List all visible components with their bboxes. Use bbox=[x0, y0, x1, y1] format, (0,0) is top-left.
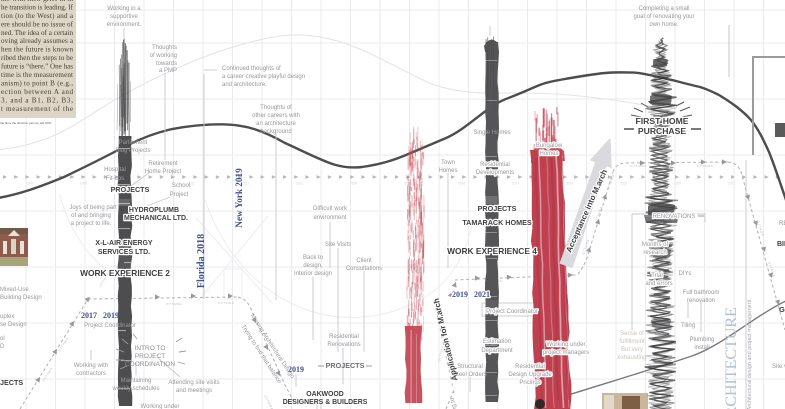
svg-text:project managers: project managers bbox=[543, 350, 589, 356]
svg-text:COORDINATION: COORDINATION bbox=[125, 361, 175, 368]
svg-text:Project Coordinator: Project Coordinator bbox=[84, 323, 136, 329]
svg-text:Site Visits: Site Visits bbox=[325, 242, 351, 248]
svg-text:Architectural design and proje: Architectural design and project managem… bbox=[747, 299, 753, 409]
svg-text:Working under: Working under bbox=[547, 342, 586, 348]
svg-text:OTTAWA: OTTAWA bbox=[166, 302, 183, 306]
svg-text:RE: RE bbox=[779, 221, 785, 227]
svg-text:environment.: environment. bbox=[107, 22, 142, 28]
svg-text:RENOVATIONS: RENOVATIONS bbox=[653, 214, 696, 220]
svg-text:PROJECTS: PROJECTS bbox=[478, 204, 517, 213]
svg-text:2021: 2021 bbox=[728, 182, 735, 186]
svg-text:and meetings: and meetings bbox=[176, 388, 212, 394]
svg-text:Renovations: Renovations bbox=[327, 342, 360, 348]
svg-text:Interior design: Interior design bbox=[294, 271, 332, 277]
svg-text:Thoughts of: Thoughts of bbox=[260, 105, 292, 111]
svg-text:own home.: own home. bbox=[649, 22, 679, 28]
svg-text:Maintaining: Maintaining bbox=[121, 378, 152, 384]
svg-text:Developments: Developments bbox=[476, 170, 514, 176]
svg-text:Continued thoughts of: Continued thoughts of bbox=[222, 66, 281, 72]
svg-text:ARCHITECTURE: ARCHITECTURE bbox=[723, 307, 740, 409]
svg-text:a career creative playful desi: a career creative playful design bbox=[222, 74, 305, 80]
svg-text:Single Homes: Single Homes bbox=[473, 130, 510, 136]
svg-text:an architecture: an architecture bbox=[256, 121, 296, 127]
svg-text:Mixed-Use: Mixed-Use bbox=[0, 287, 29, 293]
svg-text:3, and a B1, B2, B3,: 3, and a B1, B2, B3, bbox=[1, 96, 73, 104]
svg-text:SERVICES LTD.: SERVICES LTD. bbox=[98, 249, 150, 256]
svg-text:HYDROPLUMB: HYDROPLUMB bbox=[129, 207, 179, 214]
svg-text:Working in a: Working in a bbox=[107, 6, 141, 12]
svg-text:and architecture.: and architecture. bbox=[222, 82, 267, 88]
svg-text:FIRST HOME: FIRST HOME bbox=[636, 116, 689, 126]
svg-text:D: D bbox=[0, 344, 5, 350]
svg-text:t measurement of the: t measurement of the bbox=[1, 105, 73, 113]
svg-text:Parliament: Parliament bbox=[119, 140, 148, 146]
svg-text:Residential: Residential bbox=[515, 364, 545, 370]
svg-text:Difficult work: Difficult work bbox=[313, 206, 348, 212]
svg-text:he transition is leading. If: he transition is leading. If bbox=[1, 3, 74, 11]
svg-text:2016: 2016 bbox=[458, 182, 465, 186]
svg-text:supportive: supportive bbox=[110, 14, 138, 20]
svg-text:Consultations: Consultations bbox=[346, 266, 382, 272]
svg-text:Bldg Projects: Bldg Projects bbox=[115, 148, 150, 154]
svg-text:WORK EXPERIENCE 2: WORK EXPERIENCE 2 bbox=[80, 268, 170, 278]
svg-text:Design Upgrade: Design Upgrade bbox=[508, 372, 552, 378]
svg-text:Florida 2018: Florida 2018 bbox=[196, 234, 207, 288]
svg-text:New York 2019: New York 2019 bbox=[234, 168, 244, 228]
svg-text:of and bringing: of and bringing bbox=[71, 213, 111, 219]
svg-text:WORK EXPERIENCE 4: WORK EXPERIENCE 4 bbox=[447, 246, 537, 256]
svg-text:Building Design: Building Design bbox=[0, 295, 42, 301]
svg-text:MECHANICAL LTD.: MECHANICAL LTD. bbox=[124, 215, 188, 222]
svg-text:DIYs: DIYs bbox=[678, 271, 691, 277]
svg-text:Estimation: Estimation bbox=[483, 339, 511, 345]
svg-text:goal of renovating your: goal of renovating your bbox=[633, 14, 694, 20]
svg-text:research: research bbox=[643, 250, 666, 256]
svg-text:ection between A and: ection between A and bbox=[1, 88, 73, 96]
svg-text:Bungalow: Bungalow bbox=[536, 143, 563, 149]
svg-text:tion (to the West) and a: tion (to the West) and a bbox=[1, 12, 74, 20]
svg-text:OTTAWA: OTTAWA bbox=[697, 164, 714, 168]
svg-text:Hospital: Hospital bbox=[104, 167, 126, 173]
svg-text:future is “there.” One has: future is “there.” One has bbox=[1, 63, 73, 71]
svg-text:Home Project: Home Project bbox=[145, 169, 182, 175]
svg-text:background: background bbox=[260, 129, 291, 135]
svg-text:2013: 2013 bbox=[296, 182, 303, 186]
svg-text:Thoughts: Thoughts bbox=[152, 45, 177, 51]
svg-text:Joys of being part: Joys of being part bbox=[69, 205, 117, 211]
svg-text:Site v: Site v bbox=[772, 364, 785, 370]
svg-text:Project Coordinator: Project Coordinator bbox=[486, 309, 538, 315]
svg-text:se Design: se Design bbox=[0, 322, 27, 328]
svg-text:Department: Department bbox=[481, 348, 513, 354]
svg-text:and errors: and errors bbox=[645, 281, 672, 287]
svg-text:exhausting: exhausting bbox=[617, 355, 646, 361]
svg-text:But very: But very bbox=[621, 347, 643, 353]
svg-text:oving already assumes a: oving already assumes a bbox=[1, 37, 74, 45]
svg-text:Residential: Residential bbox=[480, 162, 510, 168]
svg-text:School: School bbox=[172, 183, 190, 189]
svg-text:ribed then the steps to be: ribed then the steps to be bbox=[1, 54, 73, 62]
svg-text:Months of: Months of bbox=[642, 242, 669, 248]
svg-text:Working under: Working under bbox=[141, 404, 180, 409]
svg-text:PROJECTS: PROJECTS bbox=[111, 185, 150, 194]
svg-text:OTTAWA: OTTAWA bbox=[630, 164, 647, 168]
svg-text:Pricings: Pricings bbox=[519, 380, 540, 386]
svg-text:Back to: Back to bbox=[303, 255, 324, 261]
svg-text:PROJECTS: PROJECTS bbox=[326, 361, 365, 370]
svg-text:Retirement: Retirement bbox=[148, 161, 178, 167]
svg-text:ol: ol bbox=[0, 336, 5, 342]
svg-text:install: install bbox=[694, 345, 709, 351]
svg-text:Full bathroom: Full bathroom bbox=[683, 290, 720, 296]
svg-text:INTRO TO: INTRO TO bbox=[135, 345, 166, 352]
svg-text:fulfillment: fulfillment bbox=[619, 339, 645, 345]
svg-text:Tiling: Tiling bbox=[681, 323, 695, 329]
svg-text:weekly schedules: weekly schedules bbox=[111, 386, 159, 392]
svg-text:time is the measurement: time is the measurement bbox=[1, 71, 73, 79]
svg-text:2017: 2017 bbox=[512, 182, 519, 186]
svg-text:G: G bbox=[779, 305, 785, 314]
svg-text:Homes: Homes bbox=[438, 168, 457, 174]
svg-text:2018: 2018 bbox=[566, 182, 573, 186]
svg-text:OAKWOOD: OAKWOOD bbox=[306, 391, 344, 398]
svg-text:Structural: Structural bbox=[457, 364, 483, 370]
svg-text:PROJECT: PROJECT bbox=[135, 353, 165, 360]
svg-text:ned. The idea of a certain: ned. The idea of a certain bbox=[1, 29, 73, 37]
svg-text:contractors: contractors bbox=[76, 371, 106, 377]
svg-text:2019 2021: 2019 2021 bbox=[452, 290, 490, 299]
svg-text:ere should be no issue of: ere should be no issue of bbox=[1, 20, 74, 28]
svg-text:other careers with: other careers with bbox=[252, 113, 300, 119]
svg-text:2020: 2020 bbox=[674, 182, 681, 186]
svg-text:towards: towards bbox=[156, 61, 177, 67]
svg-text:Completing a small: Completing a small bbox=[638, 6, 689, 12]
svg-text:of working: of working bbox=[150, 53, 177, 59]
svg-text:OTTAWA: OTTAWA bbox=[218, 301, 235, 305]
svg-text:Plumbing: Plumbing bbox=[689, 337, 714, 343]
svg-text:Fit-ups: Fit-ups bbox=[106, 176, 124, 182]
svg-text:DESIGNERS & BUILDERS: DESIGNERS & BUILDERS bbox=[283, 399, 368, 406]
svg-text:Town: Town bbox=[441, 160, 455, 166]
svg-text:2014: 2014 bbox=[350, 182, 357, 186]
svg-text:Sense of: Sense of bbox=[620, 331, 644, 337]
svg-text:Attending site visits: Attending site visits bbox=[168, 380, 219, 386]
svg-text:2017 2019: 2017 2019 bbox=[81, 311, 119, 320]
svg-text:Trial: Trial bbox=[651, 273, 662, 279]
svg-text:environment: environment bbox=[313, 215, 346, 221]
svg-text:hen the future is known: hen the future is known bbox=[1, 46, 73, 54]
svg-text:Client: Client bbox=[356, 258, 372, 264]
svg-text:Homes: Homes bbox=[539, 151, 558, 157]
svg-text:renovation: renovation bbox=[687, 298, 715, 304]
svg-text:2008: 2008 bbox=[26, 182, 33, 186]
svg-text:Project: Project bbox=[170, 192, 189, 198]
svg-text:2009: 2009 bbox=[80, 182, 87, 186]
svg-text:the films the direction journe: the films the direction journey will 4X6… bbox=[0, 121, 52, 125]
svg-text:a PMP: a PMP bbox=[159, 68, 177, 74]
svg-text:a project to life.: a project to life. bbox=[71, 221, 112, 227]
svg-text:design,: design, bbox=[303, 263, 323, 269]
svg-text:2019: 2019 bbox=[620, 182, 627, 186]
svg-text:Working with: Working with bbox=[74, 363, 108, 369]
svg-text:X-L-AIR ENERGY: X-L-AIR ENERGY bbox=[95, 240, 153, 247]
svg-text:Residential: Residential bbox=[329, 334, 359, 340]
svg-text:uplex: uplex bbox=[0, 314, 14, 320]
svg-text:JECTS: JECTS bbox=[0, 378, 23, 387]
svg-text:TAMARACK HOMES: TAMARACK HOMES bbox=[462, 218, 532, 227]
svg-text:BILD: BILD bbox=[777, 241, 785, 248]
svg-text:PURCHASE: PURCHASE bbox=[638, 126, 686, 136]
svg-text:anism) to point B (e.g.,: anism) to point B (e.g., bbox=[1, 80, 73, 88]
